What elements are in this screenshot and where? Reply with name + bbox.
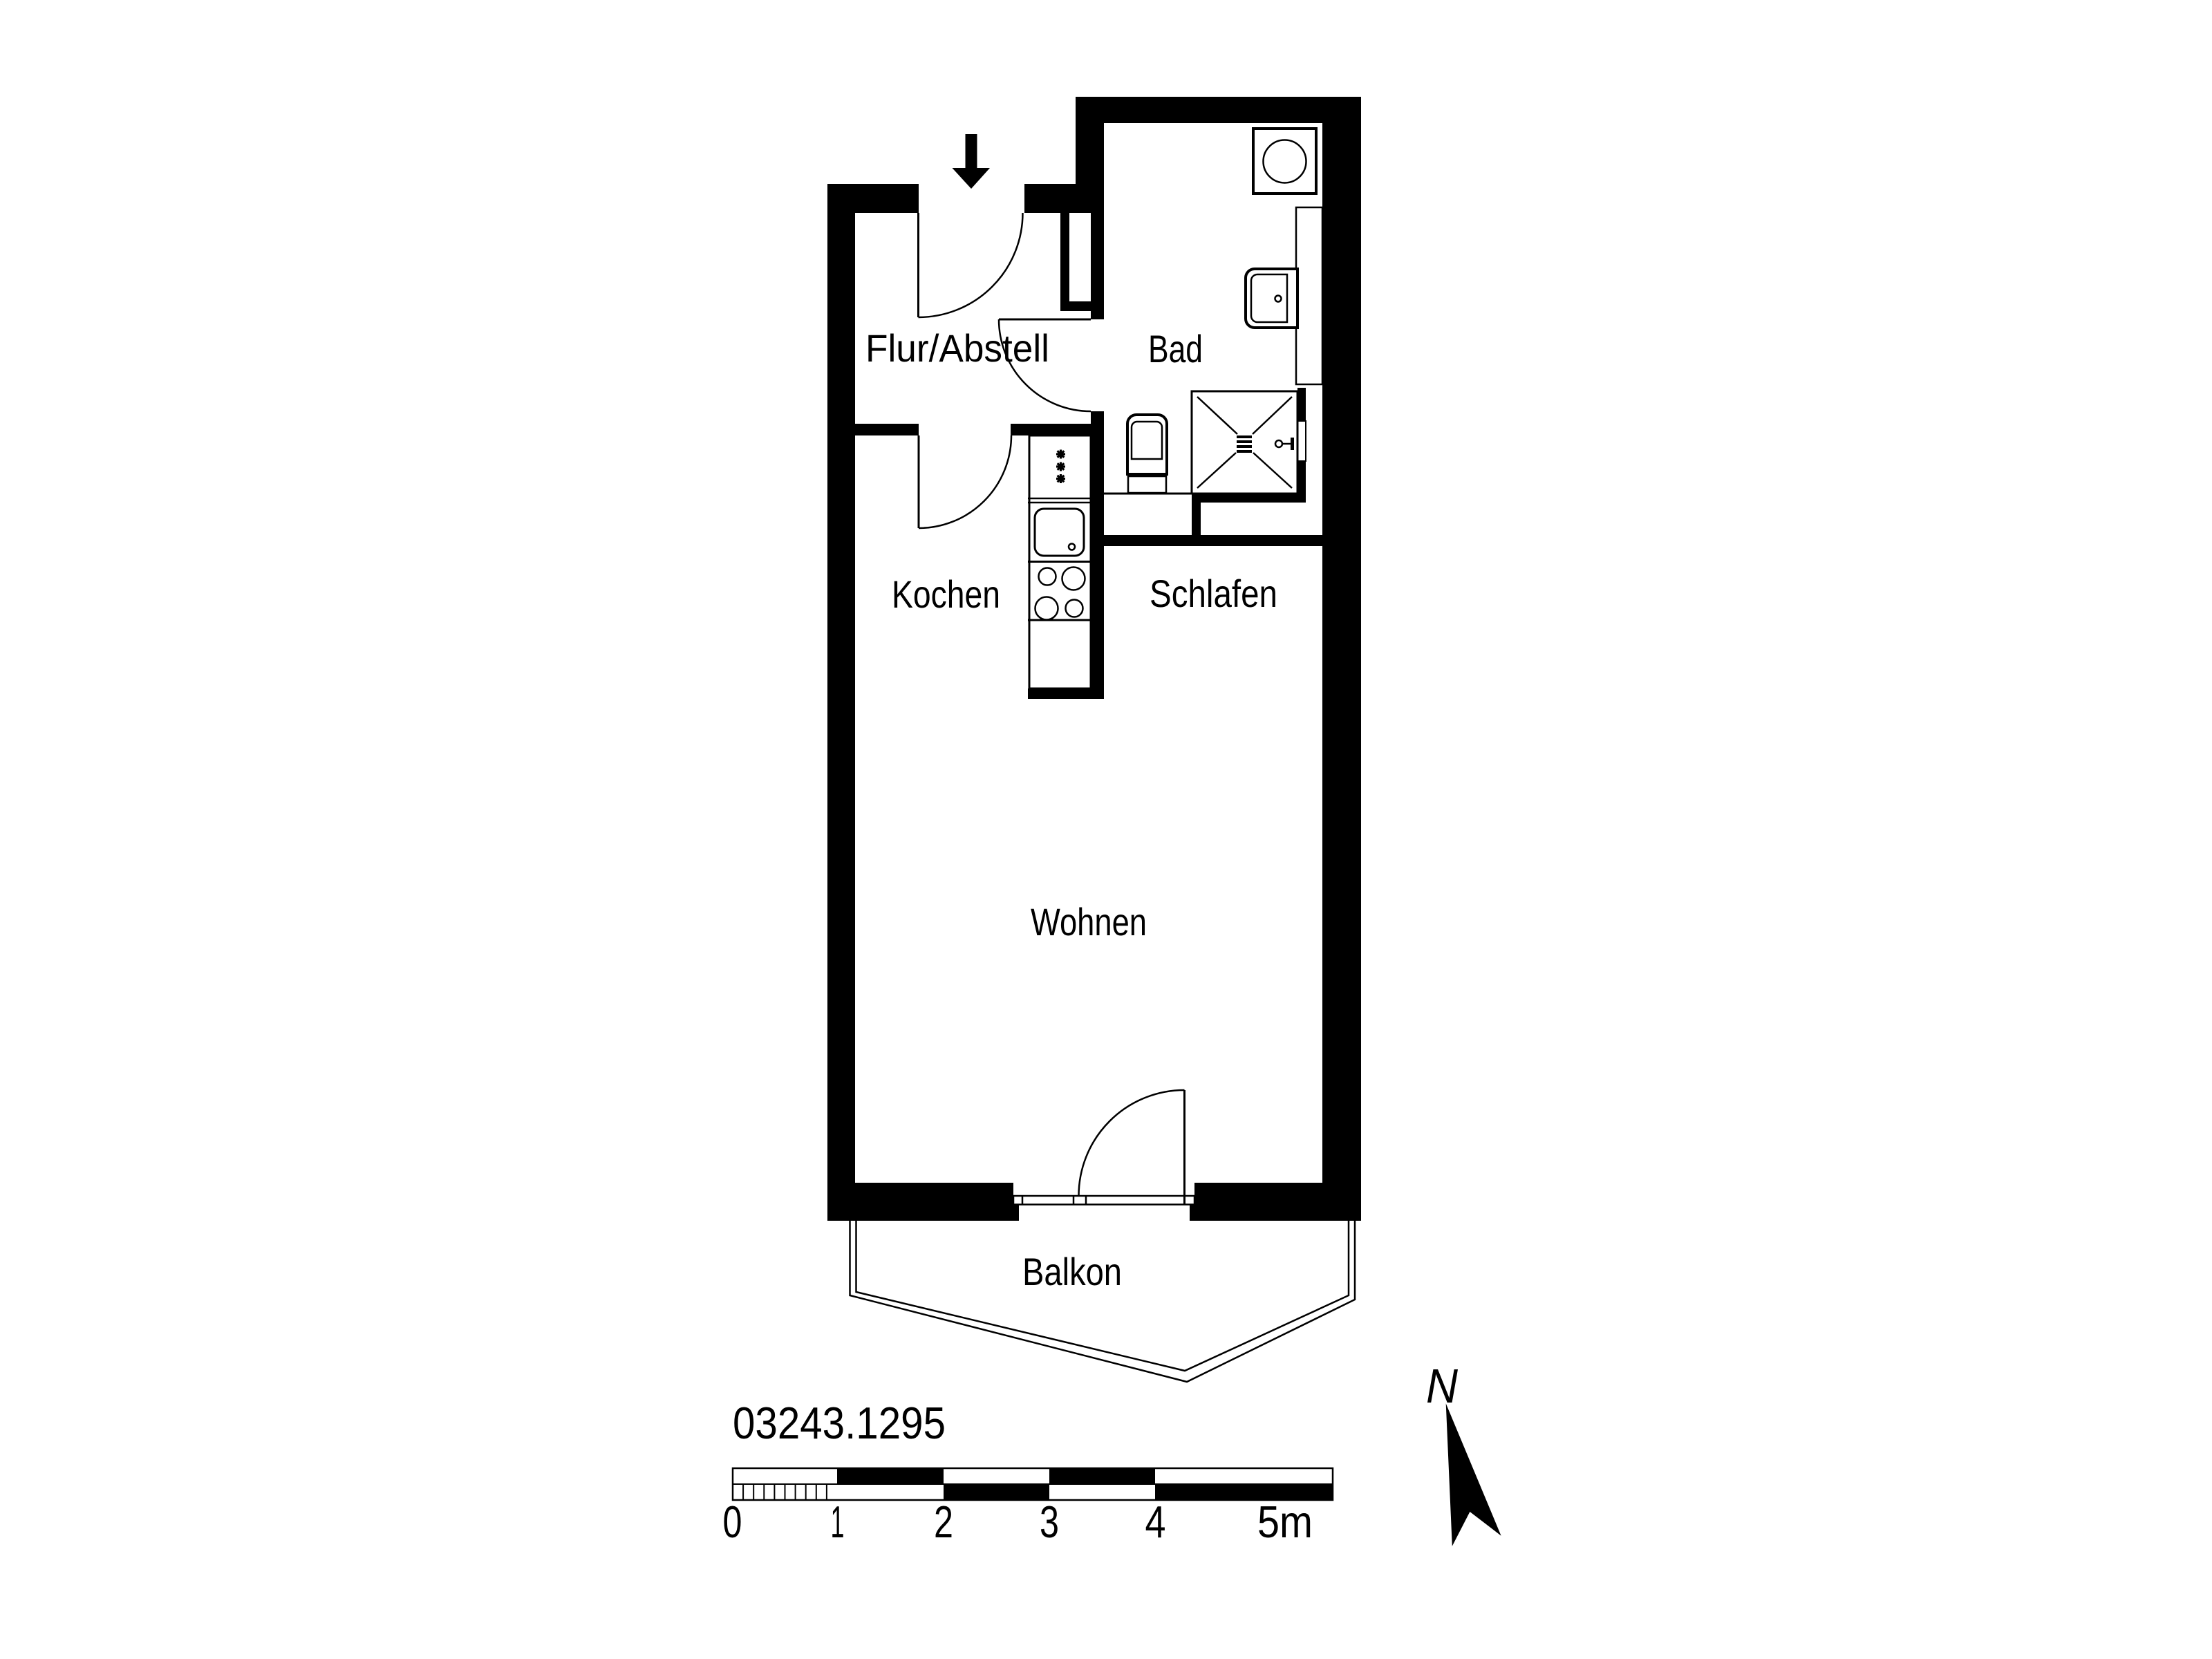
svg-text:Balkon: Balkon [1022,1250,1122,1293]
svg-text:03243.1295: 03243.1295 [733,1398,946,1448]
svg-text:1: 1 [831,1497,845,1547]
svg-text:Schlafen: Schlafen [1150,572,1277,615]
svg-text:5m: 5m [1257,1497,1313,1547]
svg-text:4: 4 [1145,1497,1166,1547]
svg-text:Flur/Abstell: Flur/Abstell [865,326,1049,370]
svg-text:2: 2 [934,1497,953,1547]
svg-text:3: 3 [1040,1497,1059,1547]
svg-text:Bad: Bad [1148,327,1203,371]
svg-text:N: N [1426,1359,1458,1413]
svg-text:Kochen: Kochen [892,572,1000,616]
svg-text:Wohnen: Wohnen [1031,900,1147,944]
svg-text:0: 0 [723,1497,742,1547]
